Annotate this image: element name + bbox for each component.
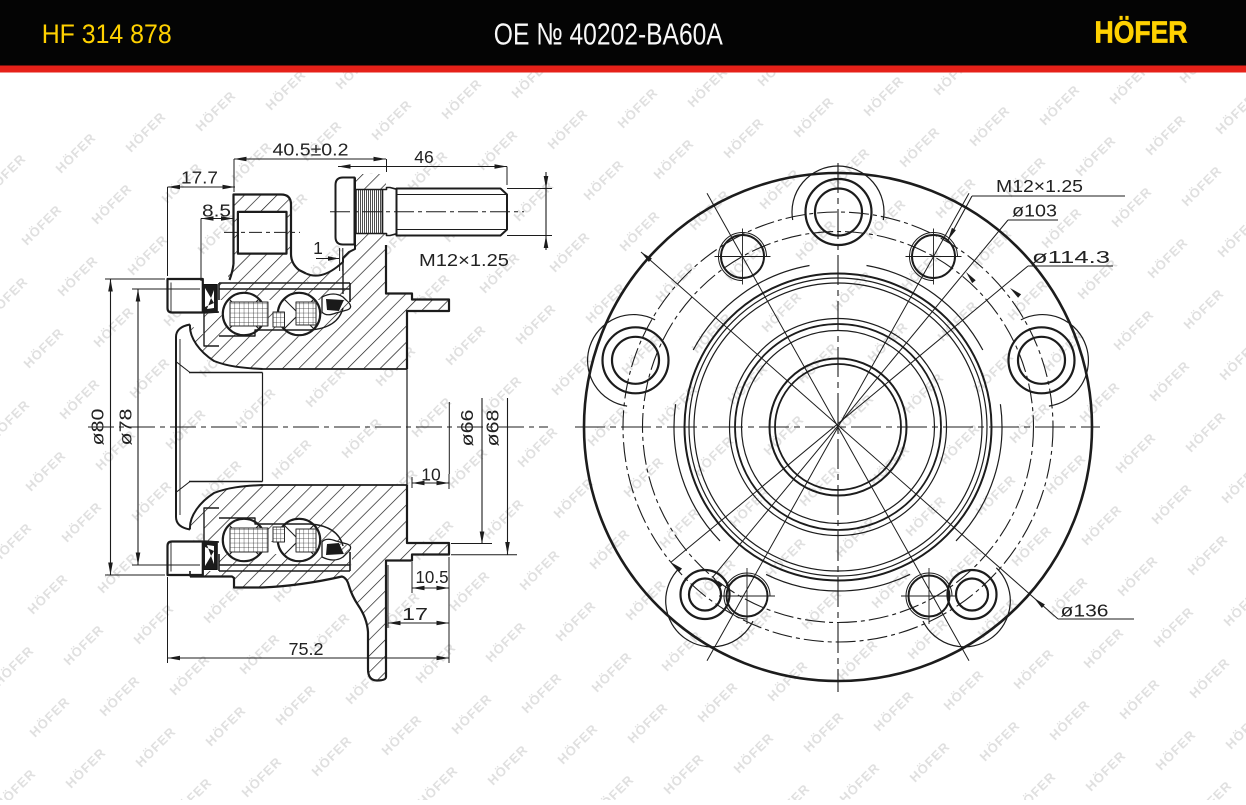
svg-text:HÖFER: HÖFER [1095, 15, 1188, 50]
svg-text:ø78: ø78 [116, 409, 136, 446]
svg-text:M12×1.25: M12×1.25 [419, 250, 509, 270]
svg-text:M12×1.25: M12×1.25 [996, 176, 1083, 196]
svg-text:75.2: 75.2 [289, 639, 324, 659]
svg-text:ø114.3: ø114.3 [1032, 247, 1110, 267]
svg-text:40.5±0.2: 40.5±0.2 [273, 140, 349, 160]
svg-text:ø68: ø68 [483, 410, 503, 447]
svg-text:17.7: 17.7 [181, 168, 218, 188]
svg-text:ø80: ø80 [88, 408, 108, 445]
svg-text:ø136: ø136 [1061, 601, 1109, 621]
svg-text:ø66: ø66 [457, 410, 477, 447]
svg-text:10.5: 10.5 [416, 567, 449, 587]
svg-text:46: 46 [414, 147, 433, 167]
svg-text:OE № 40202-BA60A: OE № 40202-BA60A [494, 17, 723, 52]
svg-text:HF 314 878: HF 314 878 [42, 19, 172, 49]
svg-text:1: 1 [313, 238, 323, 258]
svg-text:ø103: ø103 [1012, 201, 1057, 221]
svg-text:17: 17 [402, 604, 428, 624]
